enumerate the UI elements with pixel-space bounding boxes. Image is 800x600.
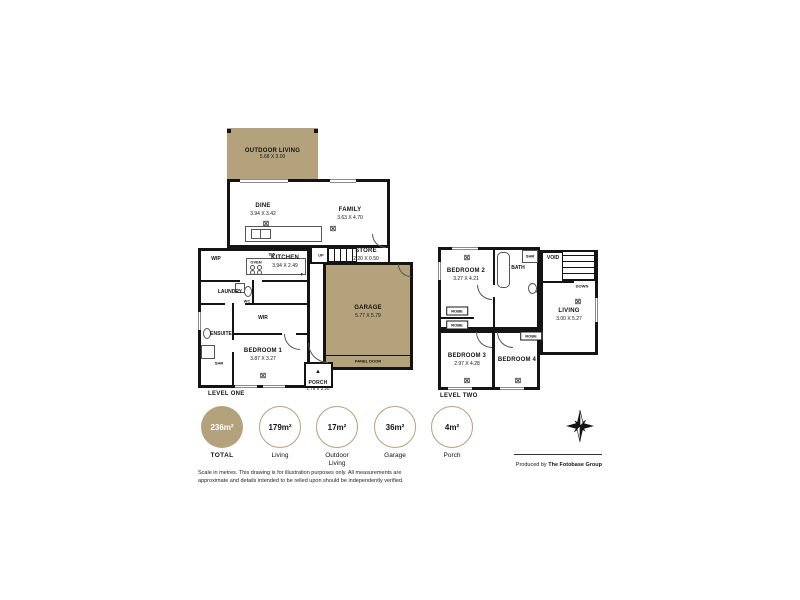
wall-segment — [262, 280, 310, 282]
area-circle-garage: 36m² — [374, 406, 416, 448]
post-marker — [227, 129, 231, 133]
light-icon: ⊠ — [515, 377, 522, 385]
wall-segment — [493, 249, 495, 285]
shower-label: SHR — [526, 254, 534, 259]
window — [452, 247, 478, 250]
window — [448, 387, 472, 390]
room-label-wir: WIR — [258, 315, 268, 321]
light-icon: ⊠ — [575, 298, 582, 306]
floorplan-page: { "palette": {"tan": "#b3a27c", "wall": … — [0, 0, 800, 600]
robe-label: ROBE — [520, 332, 542, 341]
window — [198, 312, 201, 330]
window — [500, 387, 524, 390]
room-label-bedroom1: BEDROOM 1 3.87 X 3.27 — [244, 348, 282, 362]
room-dims-outdoor-living: 5.68 X 3.00 — [260, 154, 286, 160]
light-icon: ⊠ — [464, 254, 471, 262]
room-label-laundry: LAUNDRY — [218, 289, 242, 295]
area-value-garage: 36m² — [386, 423, 405, 432]
area-label-outdoor-living: Outdoor Living — [317, 452, 357, 468]
shower-label: SHR — [215, 361, 223, 366]
room-label-store: STORE 2.20 X 0.50 — [353, 248, 379, 262]
light-icon: ⊠ — [330, 225, 337, 233]
wall-segment — [493, 297, 495, 330]
room-label-kitchen: KITCHEN 3.94 X 2.49 — [271, 255, 299, 269]
credit-text: Produced by The Fotobase Group — [480, 462, 602, 468]
room-label-ensuite: ENSUITE — [210, 331, 232, 337]
wall-segment — [492, 332, 495, 388]
room-label-garage: GARAGE 5.77 X 5.79 — [354, 305, 382, 319]
panel-door-label: PANEL DOOR — [355, 359, 381, 364]
room-label-living: LIVING 3.00 X 5.27 — [556, 308, 582, 322]
room-label-wc-l2: WC — [536, 289, 543, 294]
wall-segment — [540, 281, 574, 283]
wall-segment — [198, 280, 240, 282]
panel-door-line — [326, 355, 410, 356]
window — [235, 385, 257, 388]
credit-divider — [514, 454, 602, 455]
stairs-down-label: DOWN — [576, 284, 589, 289]
window — [263, 385, 285, 388]
area-label-living: Living — [260, 452, 300, 460]
outdoor-living-area: OUTDOOR LIVING 5.68 X 3.00 — [227, 128, 318, 179]
wall-segment — [232, 333, 282, 335]
room-label-dine: DINE 3.94 X 3.42 — [250, 203, 276, 217]
room-label-bedroom3: BEDROOM 3 2.97 X 4.28 — [448, 353, 486, 367]
cooktop-burner-icon — [250, 270, 255, 275]
area-value-total: 236m² — [210, 423, 233, 432]
window — [595, 298, 598, 322]
area-label-garage: Garage — [375, 452, 415, 460]
sink-icon — [251, 229, 271, 239]
area-value-outdoor-living: 17m² — [328, 423, 347, 432]
wall-segment — [440, 317, 474, 319]
entry-marker-icon: ▲ — [315, 369, 321, 375]
window — [240, 179, 288, 183]
level-two-label: LEVEL TWO — [440, 393, 478, 399]
room-label-bedroom2: BEDROOM 2 3.27 X 4.21 — [447, 268, 485, 282]
area-value-living: 179m² — [268, 423, 291, 432]
area-circle-outdoor-living: 17m² — [316, 406, 358, 448]
room-label-porch: PORCH 1.76 X 2.20 — [306, 380, 329, 392]
stairs-down — [562, 251, 595, 281]
area-circle-total: 236m² — [201, 406, 243, 448]
area-label-total: TOTAL — [202, 452, 242, 460]
light-icon: ⊠ — [260, 372, 267, 380]
level-one-label: LEVEL ONE — [208, 391, 245, 397]
area-label-porch: Porch — [432, 452, 472, 460]
window — [438, 262, 441, 280]
wall-segment — [245, 303, 310, 305]
robe-label: ROBE — [446, 307, 468, 316]
room-label-wc: WC — [244, 299, 251, 304]
light-icon: ⊠ — [263, 220, 270, 228]
sink-divider — [260, 230, 261, 238]
wall-segment — [232, 352, 234, 388]
room-label-bedroom4: BEDROOM 4 — [498, 357, 536, 365]
door-arc — [308, 343, 328, 363]
cooktop-burner-icon — [257, 270, 262, 275]
disclaimer-line1: Scale in metres. This drawing is for ill… — [198, 470, 448, 478]
room-label-wip: WIP — [211, 256, 220, 262]
area-circle-porch: 4m² — [431, 406, 473, 448]
robe-label: ROBE — [446, 321, 468, 330]
shower-icon — [201, 345, 215, 359]
stairs-up-label: UP — [318, 253, 324, 258]
light-icon: ⊠ — [464, 377, 471, 385]
oven-label: OVEN — [250, 260, 261, 265]
post-marker — [314, 129, 318, 133]
window — [330, 179, 356, 183]
disclaimer-text: Scale in metres. This drawing is for ill… — [198, 470, 448, 486]
room-label-family: FAMILY 3.63 X 4.70 — [337, 207, 363, 221]
room-label-bath: BATH — [511, 265, 525, 271]
compass-icon — [566, 410, 594, 442]
area-circle-living: 179m² — [259, 406, 301, 448]
wall-segment — [252, 280, 254, 303]
wall-segment — [198, 303, 225, 305]
credit-prefix: Produced by — [516, 462, 548, 468]
disclaimer-line2: approximate and details intended to be r… — [198, 478, 448, 486]
area-value-porch: 4m² — [445, 423, 459, 432]
credit-company: The Fotobase Group — [548, 462, 602, 468]
bathtub-icon — [497, 252, 510, 288]
fridge-label: F — [301, 272, 303, 277]
toilet-icon — [244, 286, 252, 297]
room-label-void: VOID — [547, 255, 559, 261]
